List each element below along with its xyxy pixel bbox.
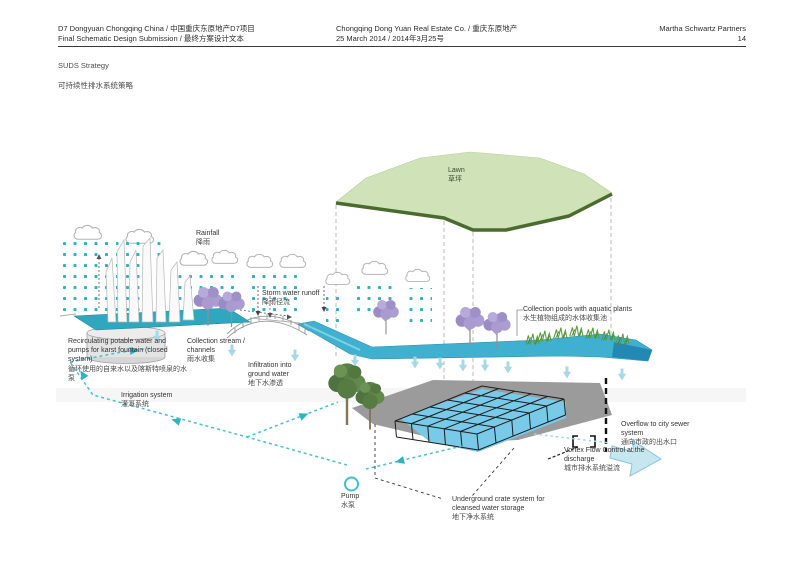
pump-label-en: Pump xyxy=(341,492,359,501)
infiltration-label-en: Infiltration into ground water xyxy=(248,361,306,379)
lawn-label: Lawn 草坪 xyxy=(448,166,465,184)
page-number: 14 xyxy=(659,34,746,44)
lawn-label-zh: 草坪 xyxy=(448,175,465,184)
underground-crate-label-zh: 地下净水系统 xyxy=(452,513,568,522)
overflow-label-en: Overflow to city sewer system xyxy=(621,420,707,438)
recirc-arrow-down xyxy=(268,313,273,318)
collection-pools-label-zh: 水生植物组成的水体收集池 xyxy=(523,314,683,323)
rainfall-label-en: Rainfall xyxy=(196,229,219,238)
client-name: Chongqing Dong Yuan Real Estate Co. / 重庆… xyxy=(336,24,517,34)
submission-title: Final Schematic Design Submission / 最终方案… xyxy=(58,34,255,44)
pump-label-zh: 水泵 xyxy=(341,501,359,510)
firm-name: Martha Schwartz Partners xyxy=(659,24,746,34)
underground-crate-label: Underground crate system for cleansed wa… xyxy=(452,495,568,523)
recirc-arrow-right xyxy=(287,315,292,320)
collection-pools-label-en: Collection pools with aquatic plants xyxy=(523,305,683,314)
page-title-en: SUDS Strategy xyxy=(58,61,109,70)
storm-runoff-label-en: Storm water runoff xyxy=(262,289,332,298)
header-left: D7 Dongyuan Chongqing China / 中国重庆东原地产D7… xyxy=(58,24,255,44)
date-line: 25 March 2014 / 2014年3月25号 xyxy=(336,34,517,44)
irrigation-label-zh: 灌溉系统 xyxy=(121,400,172,409)
irrigation-label-en: Irrigation system xyxy=(121,391,172,400)
lawn-label-en: Lawn xyxy=(448,166,465,175)
vortex-label-en: Vortex Flow Control at the discharge xyxy=(564,446,646,464)
header-rule xyxy=(58,46,746,47)
collection-stream-label-zh: 雨水收集 xyxy=(187,355,253,364)
vortex-label: Vortex Flow Control at the discharge 城市排… xyxy=(564,446,646,474)
header-center: Chongqing Dong Yuan Real Estate Co. / 重庆… xyxy=(336,24,517,44)
lawn-plane xyxy=(336,152,612,230)
pump-label: Pump 水泵 xyxy=(341,492,359,510)
pump-icon xyxy=(345,478,358,491)
underground-crate-label-en: Underground crate system for cleansed wa… xyxy=(452,495,568,513)
rainfall-label: Rainfall 降雨 xyxy=(196,229,219,247)
rainfall-label-zh: 降雨 xyxy=(196,238,219,247)
storm-runoff-label-zh: 降雨径流 xyxy=(262,298,332,307)
recirculating-label-zh: 循环使用的自来水以及喀斯特喷泉的水泵 xyxy=(68,365,188,383)
overflow-dotted-path xyxy=(534,434,610,443)
recirculating-label-en: Recirculating potable water and pumps fo… xyxy=(68,337,188,365)
recirculating-label: Recirculating potable water and pumps fo… xyxy=(68,337,188,383)
collection-pools-label: Collection pools with aquatic plants 水生植… xyxy=(523,305,683,323)
vortex-label-zh: 城市排水系统溢流 xyxy=(564,464,646,473)
header-right: Martha Schwartz Partners 14 xyxy=(659,24,746,44)
collection-stream-label-en: Collection stream / channels xyxy=(187,337,253,355)
storm-runoff-label: Storm water runoff 降雨径流 xyxy=(262,289,332,307)
irrigation-label: Irrigation system 灌溉系统 xyxy=(121,391,172,409)
collection-stream-label: Collection stream / channels 雨水收集 xyxy=(187,337,253,365)
infiltration-label-zh: 地下水渗透 xyxy=(248,379,306,388)
page-title-zh: 可持续性排水系统策略 xyxy=(58,80,133,91)
slide-page: D7 Dongyuan Chongqing China / 中国重庆东原地产D7… xyxy=(0,0,800,565)
infiltration-label: Infiltration into ground water 地下水渗透 xyxy=(248,361,306,389)
project-title: D7 Dongyuan Chongqing China / 中国重庆东原地产D7… xyxy=(58,24,255,34)
overflow-label: Overflow to city sewer system 通向市政的出水口 xyxy=(621,420,707,448)
